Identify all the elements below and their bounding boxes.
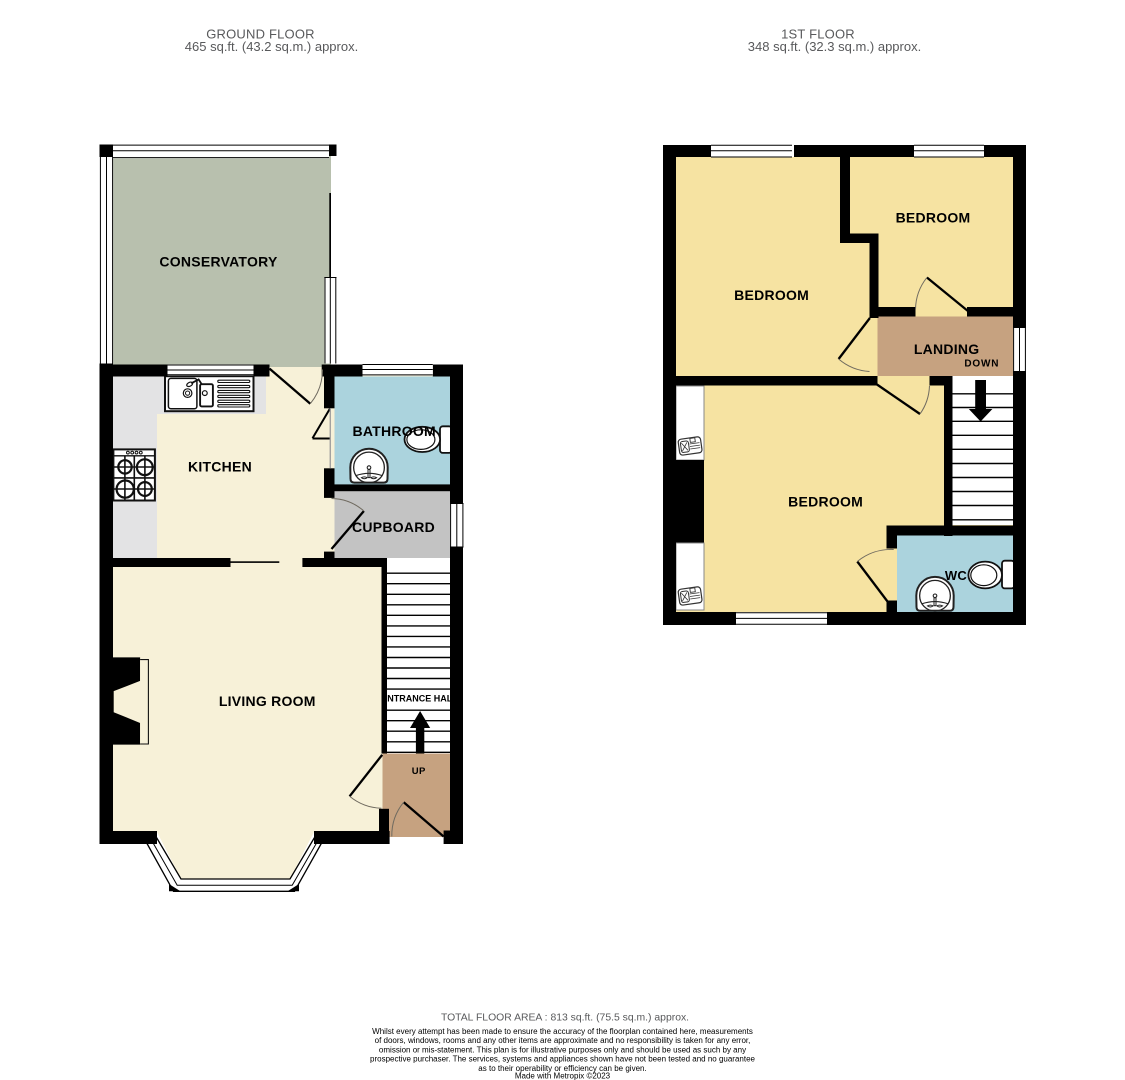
- svg-text:BEDROOM: BEDROOM: [788, 493, 863, 509]
- svg-text:Made with Metropix ©2023: Made with Metropix ©2023: [515, 1072, 611, 1080]
- svg-text:UP: UP: [412, 766, 426, 777]
- svg-text:omission or mis-statement. Thi: omission or mis-statement. This plan is …: [379, 1045, 746, 1054]
- svg-text:LIVING ROOM: LIVING ROOM: [219, 693, 316, 709]
- svg-text:of doors, windows, rooms and a: of doors, windows, rooms and any other i…: [375, 1036, 751, 1045]
- svg-text:BEDROOM: BEDROOM: [896, 210, 971, 226]
- svg-text:Whilst every attempt has been: Whilst every attempt has been made to en…: [372, 1027, 753, 1036]
- svg-text:LANDING: LANDING: [914, 341, 980, 357]
- svg-text:BATHROOM: BATHROOM: [352, 423, 435, 439]
- svg-text:348 sq.ft. (32.3 sq.m.) approx: 348 sq.ft. (32.3 sq.m.) approx.: [748, 39, 921, 54]
- svg-text:ENTRANCE HALL: ENTRANCE HALL: [381, 694, 458, 704]
- svg-text:BEDROOM: BEDROOM: [734, 287, 809, 303]
- svg-text:465 sq.ft. (43.2 sq.m.) approx: 465 sq.ft. (43.2 sq.m.) approx.: [185, 39, 358, 54]
- svg-text:KITCHEN: KITCHEN: [188, 458, 252, 474]
- svg-text:CUPBOARD: CUPBOARD: [352, 519, 435, 535]
- svg-text:prospective purchaser. The ser: prospective purchaser. The services, sys…: [370, 1055, 756, 1064]
- svg-text:CONSERVATORY: CONSERVATORY: [159, 254, 278, 270]
- svg-text:DOWN: DOWN: [964, 359, 999, 370]
- svg-text:WC: WC: [945, 568, 968, 583]
- svg-text:TOTAL FLOOR AREA : 813 sq.ft.: TOTAL FLOOR AREA : 813 sq.ft. (75.5 sq.m…: [441, 1013, 689, 1024]
